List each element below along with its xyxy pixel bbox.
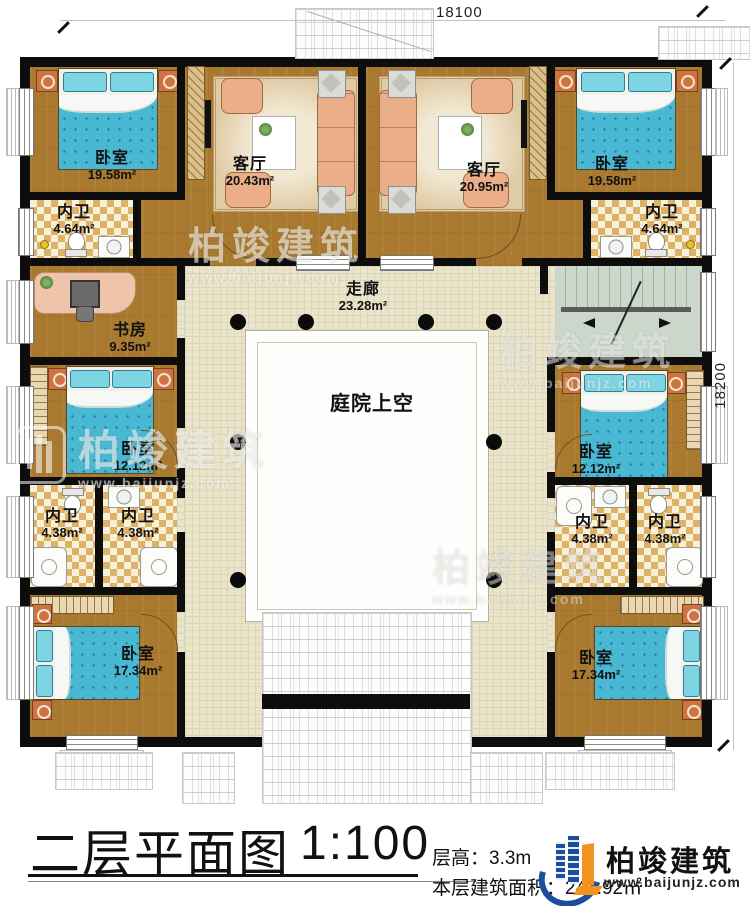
wall (30, 477, 185, 485)
room-name: 卧室 (588, 156, 636, 174)
courtyard-void (245, 330, 489, 622)
room-name: 卧室 (572, 444, 620, 462)
window (18, 496, 34, 578)
room-name: 内卫 (41, 508, 82, 526)
desk-chair (76, 306, 94, 322)
wall (547, 587, 702, 595)
monitor (70, 280, 100, 308)
room-area: 12.12m² (114, 459, 162, 473)
room-label-courtyard: 庭院上空 (330, 393, 414, 415)
logo-bar (556, 842, 565, 880)
bed-sheet (55, 627, 71, 699)
room-label-bedroom-tr: 卧室 19.58m² (588, 156, 636, 188)
room-label-bedroom-ml: 卧室 12.12m² (114, 441, 162, 473)
side-table (388, 70, 416, 98)
room-label-bath-tl: 内卫 4.64m² (53, 204, 94, 236)
floor-height-text: 层高：3.3m (432, 843, 531, 870)
room-name: 卧室 (572, 650, 620, 668)
room-label-bedroom-tl: 卧室 19.58m² (88, 150, 136, 182)
wall (95, 485, 103, 587)
roof-bottom-right (545, 752, 675, 790)
nightstand (32, 604, 52, 624)
bed-sheet (577, 95, 675, 113)
plan-scale: 1:100 (300, 816, 430, 871)
column (418, 314, 434, 330)
shower-icon (140, 547, 178, 587)
room-name: 客厅 (226, 156, 274, 174)
plant (461, 123, 474, 136)
wall (583, 200, 591, 258)
room-name: 内卫 (53, 204, 94, 222)
window (18, 606, 34, 700)
room-area: 17.34m² (572, 668, 620, 682)
bed-pillow (683, 630, 700, 662)
sink-icon (594, 486, 626, 508)
dim-tick (57, 21, 70, 34)
room-area: 4.64m² (53, 222, 94, 236)
sofa (317, 90, 355, 196)
shower-icon (31, 547, 67, 587)
bed-pillow (70, 370, 110, 388)
shower-icon (666, 547, 703, 587)
bed-pillow (110, 72, 154, 92)
toilet-icon (650, 495, 667, 514)
bed-sheet (67, 391, 153, 408)
room-area: 9.35m² (109, 340, 150, 354)
column (230, 572, 246, 588)
roof-bottom-right2 (470, 752, 543, 804)
tv (521, 100, 527, 148)
sofa (379, 90, 417, 196)
column (298, 314, 314, 330)
room-label-bath-r1: 内卫 4.38m² (571, 514, 612, 546)
door-opening (177, 612, 185, 652)
room-label-bath-tr: 内卫 4.64m² (641, 204, 682, 236)
wall-center (358, 67, 366, 258)
roof-top-right (658, 26, 750, 60)
room-name: 书房 (109, 322, 150, 340)
toilet-tank (65, 249, 87, 257)
room-name: 内卫 (571, 514, 612, 532)
logo-bar-orange (582, 843, 594, 887)
side-table (318, 70, 346, 98)
bed-sheet (665, 627, 681, 699)
door-opening (547, 498, 555, 532)
door-opening (547, 612, 555, 652)
room-label-corridor: 走廊 23.28m² (339, 281, 387, 313)
bed-sheet (581, 395, 667, 412)
room-area: 20.43m² (226, 174, 274, 188)
room-area: 23.28m² (339, 299, 387, 313)
stair-arrow-right (659, 318, 671, 328)
toilet-tank (645, 249, 667, 257)
room-label-bath-l2: 内卫 4.38m² (117, 508, 158, 540)
roof-bottom-left2 (182, 752, 235, 804)
dim-tick (717, 739, 730, 752)
window-sill (6, 88, 19, 156)
bed-pillow (683, 665, 700, 697)
room-area: 4.38m² (117, 526, 158, 540)
bed (576, 68, 676, 170)
window (296, 255, 350, 271)
wall (547, 67, 555, 200)
nightstand (676, 70, 698, 92)
column (230, 314, 246, 330)
room-name: 卧室 (114, 646, 162, 664)
wall-corridor-top (20, 258, 712, 266)
wall (30, 192, 177, 200)
nightstand (32, 700, 52, 720)
bed-pillow (112, 370, 152, 388)
wall (629, 485, 637, 587)
side-table (318, 186, 346, 214)
window (380, 255, 434, 271)
wall (555, 192, 702, 200)
title-underline-thick (28, 874, 418, 877)
bed-pillow (36, 630, 53, 662)
room-name: 卧室 (114, 441, 162, 459)
window (66, 735, 138, 751)
door-opening (547, 432, 555, 472)
sink-icon (108, 486, 140, 508)
dim-line-right (733, 62, 734, 750)
nightstand (36, 70, 58, 92)
room-name: 客厅 (460, 162, 508, 180)
tv-cabinet (529, 66, 547, 180)
room-area: 17.34m² (114, 664, 162, 678)
dim-label-right: 18200 (712, 362, 729, 409)
sink-icon (98, 236, 130, 258)
nightstand (682, 700, 702, 720)
floor-plan-page: 卧室 19.58m² 客厅 20.43m² 客厅 20.95m² 卧室 19.5… (0, 0, 750, 906)
wall (30, 587, 185, 595)
window (700, 208, 716, 256)
door-opening (177, 300, 185, 338)
wall (133, 200, 141, 258)
column (486, 572, 502, 588)
bed-pillow (626, 374, 666, 392)
room-label-study: 书房 9.35m² (109, 322, 150, 354)
room-area: 4.38m² (644, 532, 685, 546)
brand-logo: 柏竣建筑 www.baijunjz.com (540, 832, 750, 902)
dim-label-top: 18100 (436, 4, 483, 21)
wall (30, 357, 185, 365)
room-label-living-left: 客厅 20.43m² (226, 156, 274, 188)
room-area: 4.64m² (641, 222, 682, 236)
door-opening (476, 258, 522, 266)
wall (547, 477, 702, 485)
bed-sheet (59, 95, 157, 113)
room-area: 12.12m² (572, 462, 620, 476)
armchair (471, 78, 513, 114)
lamp-icon (40, 240, 49, 249)
plant (40, 276, 53, 289)
window (18, 208, 34, 256)
logo-base-orange (573, 886, 602, 895)
window (700, 272, 716, 352)
nightstand (152, 368, 174, 390)
room-area: 19.58m² (88, 168, 136, 182)
door-opening (177, 428, 185, 468)
room-label-bedroom-br: 卧室 17.34m² (572, 650, 620, 682)
nightstand (554, 70, 576, 92)
logo-bar (568, 836, 579, 884)
staircase (555, 266, 702, 357)
room-name: 庭院上空 (330, 393, 414, 415)
window-sill (6, 386, 19, 464)
window-sill (715, 88, 728, 156)
wall (547, 357, 702, 365)
plant (259, 123, 272, 136)
window (18, 88, 34, 156)
armchair (221, 78, 263, 114)
column (230, 434, 246, 450)
nightstand (682, 604, 702, 624)
bed-pillow (63, 72, 107, 92)
window-sill (6, 606, 19, 700)
room-area: 4.38m² (41, 526, 82, 540)
window (700, 88, 716, 156)
courtyard-inner-line (257, 342, 477, 610)
bed-pillow (584, 374, 624, 392)
window (700, 496, 716, 578)
tv (205, 100, 211, 148)
wall-right-column (547, 365, 555, 737)
brand-url: www.baijunjz.com (604, 874, 741, 890)
room-label-bath-r2: 内卫 4.38m² (644, 514, 685, 546)
dim-tick (696, 5, 709, 18)
wall-stair-stub (540, 258, 548, 294)
window (18, 386, 34, 464)
room-label-living-right: 客厅 20.95m² (460, 162, 508, 194)
bed-pillow (581, 72, 625, 92)
room-name: 内卫 (117, 508, 158, 526)
window (584, 735, 666, 751)
room-label-bath-l1: 内卫 4.38m² (41, 508, 82, 540)
window-sill (6, 496, 19, 578)
lamp-icon (686, 240, 695, 249)
bed-pillow (36, 665, 53, 697)
window-sill (6, 280, 19, 344)
room-label-bedroom-mr: 卧室 12.12m² (572, 444, 620, 476)
room-name: 内卫 (644, 514, 685, 532)
side-table (388, 186, 416, 214)
roof-bottom-left (55, 752, 153, 790)
stair-arrow-left (583, 318, 595, 328)
bed-pillow (628, 72, 672, 92)
room-area: 20.95m² (460, 180, 508, 194)
window (700, 606, 716, 700)
column (486, 434, 502, 450)
door-opening (210, 258, 256, 266)
canopy-beam (262, 694, 470, 709)
room-area: 4.38m² (571, 532, 612, 546)
room-name: 走廊 (339, 281, 387, 299)
column (486, 314, 502, 330)
brand-logo-icon (540, 834, 604, 900)
roof-ridge-line (307, 11, 431, 52)
roof-top-center (295, 8, 434, 59)
window (18, 280, 34, 344)
sink-icon (600, 236, 632, 258)
room-label-bedroom-bl: 卧室 17.34m² (114, 646, 162, 678)
dim-line-top (60, 20, 725, 21)
room-area: 19.58m² (588, 174, 636, 188)
title-underline-thin (28, 881, 476, 882)
window-sill (715, 606, 728, 700)
tv-cabinet (187, 66, 205, 180)
door-opening (177, 498, 185, 532)
wall (177, 67, 185, 200)
room-name: 卧室 (88, 150, 136, 168)
room-name: 内卫 (641, 204, 682, 222)
